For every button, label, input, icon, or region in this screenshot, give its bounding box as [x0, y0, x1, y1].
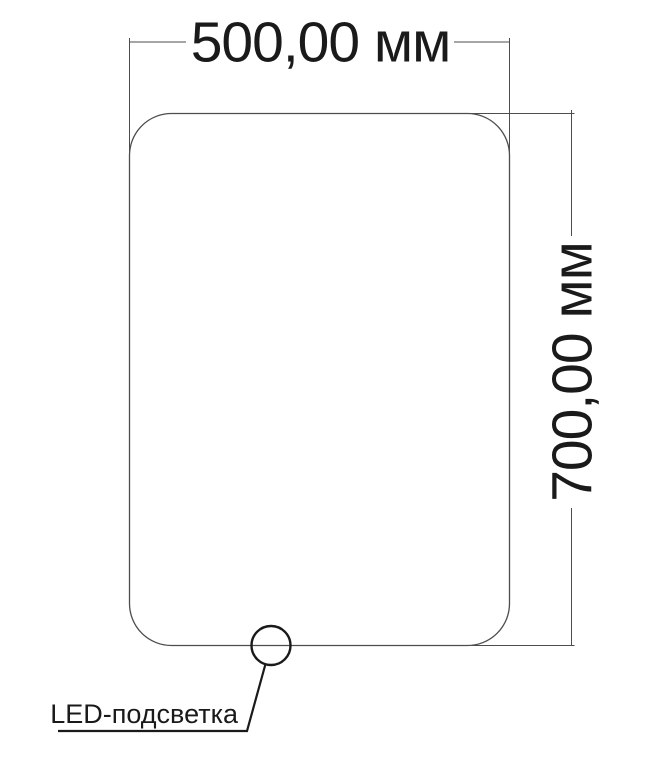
drawing-canvas: 500,00 мм 700,00 мм LED-подсветка	[0, 0, 645, 759]
height-dimension-label: 700,00 мм	[541, 242, 605, 502]
mirror-outline	[130, 114, 510, 646]
width-dimension-label: 500,00 мм	[191, 11, 451, 75]
led-callout-label: LED-подсветка	[50, 699, 239, 729]
technical-drawing: 500,00 мм 700,00 мм LED-подсветка	[0, 0, 645, 759]
